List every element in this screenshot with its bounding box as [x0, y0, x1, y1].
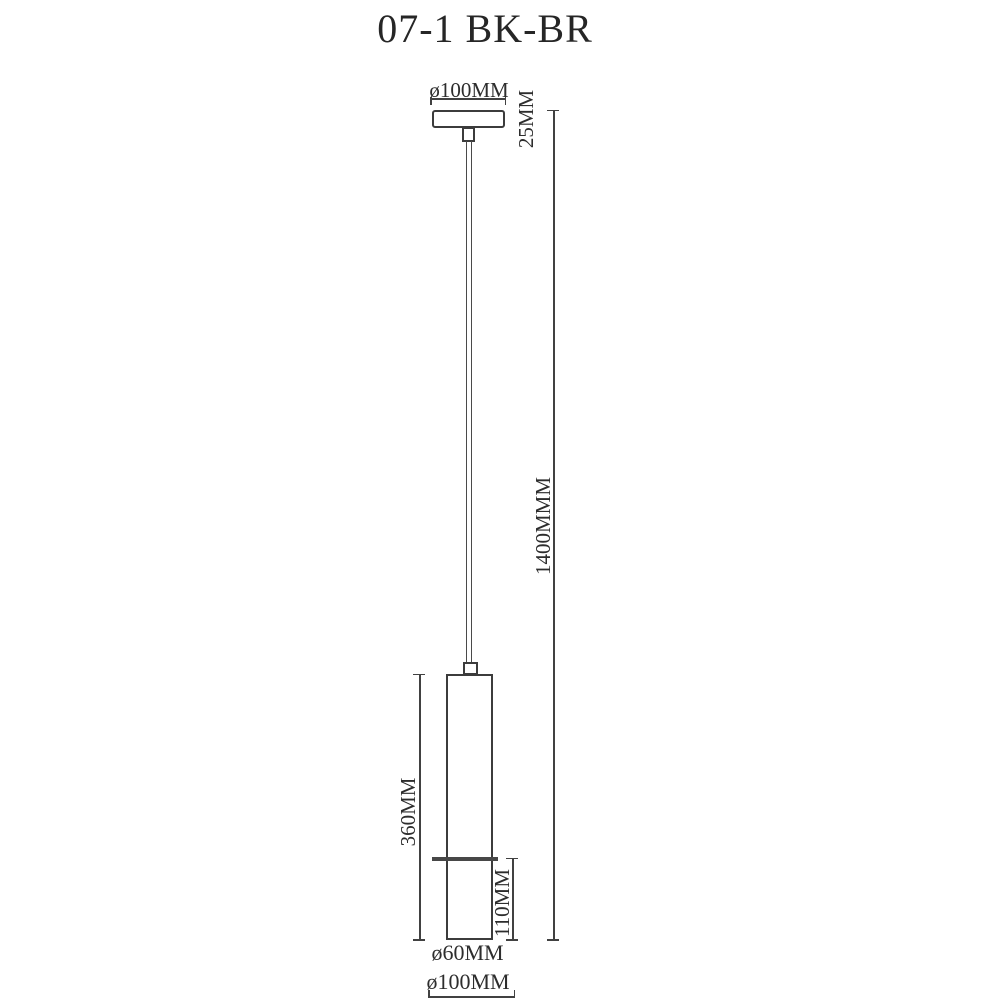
overall-drop-label: 1400MMM — [532, 477, 554, 575]
overall-drop-tick-bottom — [547, 939, 559, 941]
suspension-cable — [466, 141, 472, 663]
lower-section-tick-top — [506, 858, 518, 860]
base-dimension-line — [428, 996, 515, 998]
drawing-title: 07-1 BK-BR — [280, 6, 690, 54]
lower-section-label: 110MM — [491, 869, 513, 937]
body-height-label: 360MM — [397, 778, 419, 847]
canopy-dimension-line — [430, 98, 506, 100]
lower-section-tick-bottom — [506, 939, 518, 941]
technical-drawing-canvas: 07-1 BK-BR ø100MM 360MM 110MM 25MM 1400M… — [0, 0, 1000, 1000]
canopy-dimension-tick-right — [505, 97, 507, 105]
lamp-body — [446, 674, 493, 940]
body-separator-line — [432, 857, 498, 861]
canopy-height-label: 25MM — [515, 90, 537, 148]
base-dimension-tick-right — [514, 990, 516, 997]
base-dimension-tick-left — [428, 990, 430, 997]
ceiling-canopy — [432, 110, 505, 128]
canopy-dimension-tick-left — [430, 97, 432, 105]
body-height-tick-top — [413, 674, 425, 676]
body-height-tick-bottom — [413, 939, 425, 941]
canopy-stem — [462, 127, 475, 142]
overall-drop-tick-top — [547, 110, 559, 112]
body-diameter-label: ø60MM — [405, 942, 530, 964]
